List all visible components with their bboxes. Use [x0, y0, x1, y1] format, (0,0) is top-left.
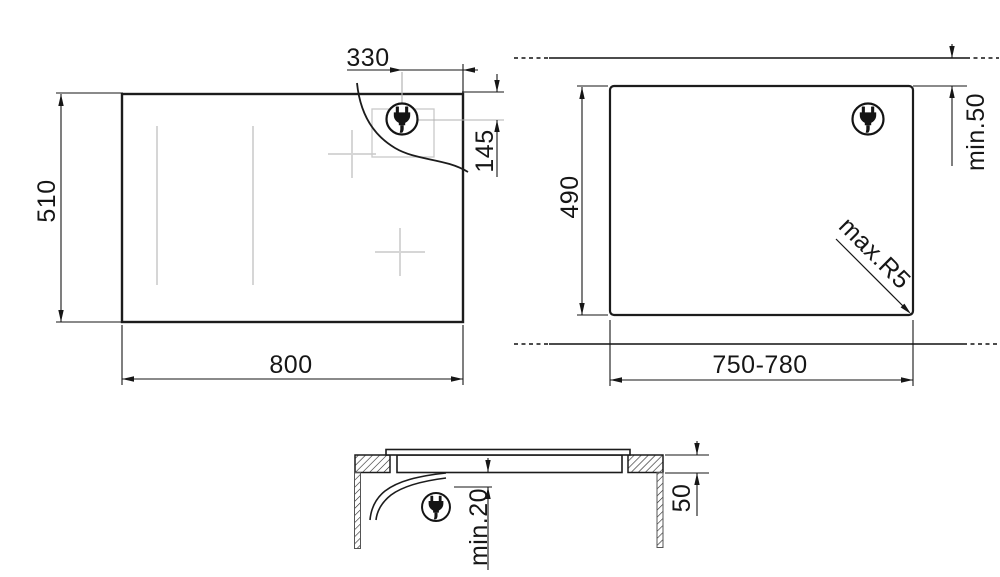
dim-label-width: 800	[269, 351, 312, 379]
arrow-down	[579, 303, 584, 315]
arrow-right	[901, 377, 913, 382]
section-view: min.20 50	[355, 441, 710, 570]
dim-label-worktop-thickness: 50	[668, 484, 696, 513]
arrow-down	[58, 310, 63, 322]
dim-label-depth: 510	[33, 179, 61, 222]
cabinet-panel-right	[657, 473, 663, 548]
cabinet-panel-left	[355, 473, 361, 549]
dim-label-cutout-width: 750-780	[712, 351, 807, 379]
dim-label-rear-clearance: min.50	[962, 93, 990, 171]
plan-view: 330 510 800 145	[33, 44, 504, 385]
worktop-section-left	[355, 455, 390, 473]
dim-label-plug-top: 145	[471, 129, 499, 172]
power-plug-icon	[422, 493, 450, 521]
arrow-up	[579, 87, 584, 99]
hob-body-section	[397, 455, 622, 473]
diagram-svg: 330 510 800 145	[0, 0, 1000, 577]
power-plug-icon	[387, 104, 418, 135]
arrow-down	[694, 443, 699, 455]
arrow-up	[694, 473, 699, 485]
arrow-left	[463, 67, 475, 72]
hob-glass-section	[386, 450, 630, 456]
dim-label-cutout-depth: 490	[556, 175, 584, 218]
installation-diagram: 330 510 800 145	[0, 0, 1000, 577]
cutout-view: 490 750-780 min.50 max.R5	[514, 44, 999, 386]
power-plug-icon	[853, 104, 884, 135]
dim-min50-lines	[913, 44, 967, 166]
arrow-up	[949, 86, 954, 98]
arrow-left	[610, 377, 622, 382]
arrow-right	[390, 67, 402, 72]
worktop-section-right	[628, 455, 663, 473]
dim-label-plug-right: 330	[346, 44, 389, 72]
arrow-down	[949, 46, 954, 58]
dim-label-bottom-clearance: min.20	[465, 488, 493, 566]
arrow-left	[122, 376, 134, 381]
arrow-right	[451, 376, 463, 381]
dim-510-lines	[56, 93, 123, 322]
arrow-up	[58, 94, 63, 106]
arrow-down	[494, 80, 499, 92]
